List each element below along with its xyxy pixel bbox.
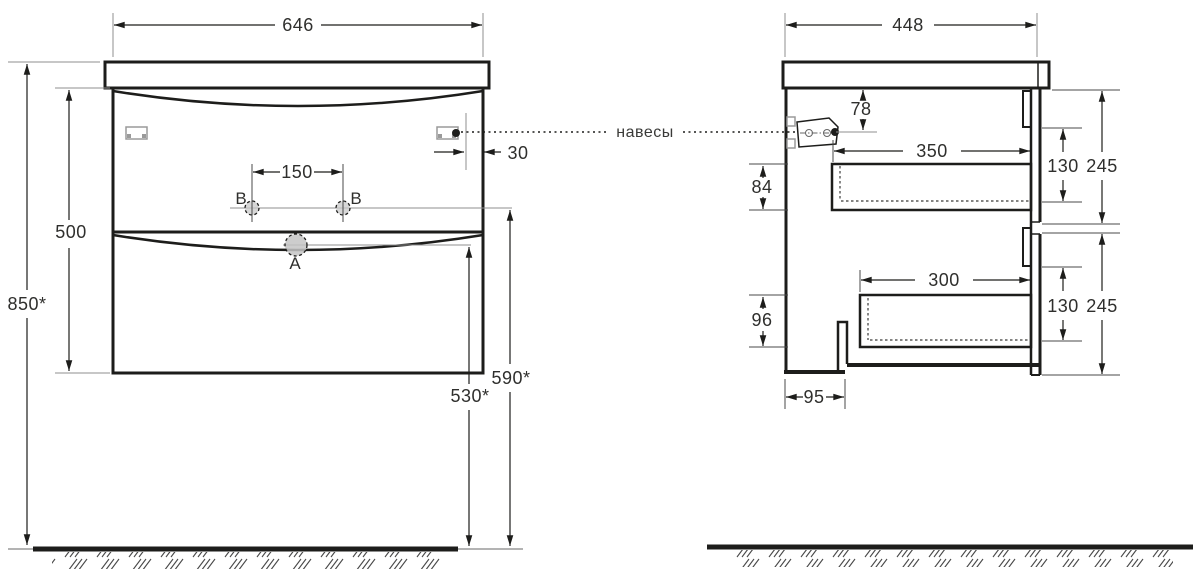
dim-hanger-inset: 30	[434, 143, 529, 163]
floor-hatching-right	[728, 550, 1173, 567]
dim-drawer1-box-height: 84	[749, 164, 788, 210]
side-depth-value: 448	[892, 15, 924, 35]
label-hole-b-left: B	[235, 189, 246, 208]
front-width-value: 646	[282, 15, 314, 35]
siphon-recess-wall	[838, 322, 847, 372]
dim-drawer2-box-height: 96	[749, 295, 788, 347]
front-view	[105, 62, 512, 373]
technical-drawing: 646 500 850* 150 30 B B A 590* 530*	[0, 0, 1200, 575]
back-recess-value: 95	[803, 387, 824, 407]
dim-back-recess: 95	[785, 379, 845, 409]
cabinet-height-value: 500	[55, 222, 87, 242]
height-to-holes-value: 590*	[491, 368, 530, 388]
floor-right	[707, 547, 1193, 567]
drawer1-front-height-value: 245	[1086, 156, 1118, 176]
dim-overall-height: 850*	[7, 62, 100, 545]
hanger-bracket-right-icon	[437, 127, 460, 139]
dim-drawer2-depth: 300	[860, 270, 1030, 292]
drawer2-box-height-value: 96	[751, 310, 772, 330]
floor-left	[8, 549, 523, 569]
hole-a	[285, 234, 307, 256]
height-to-drain-value: 530*	[450, 386, 489, 406]
dim-holes-spacing: 150	[252, 162, 343, 222]
drawer2-depth-value: 300	[928, 270, 960, 290]
dim-drawer1-depth: 350	[833, 140, 1030, 162]
front-countertop	[105, 62, 489, 88]
holes-spacing-value: 150	[281, 162, 313, 182]
dim-side-depth: 448	[785, 13, 1037, 57]
drawer-box-2	[860, 295, 1031, 347]
drawer1-box-height-value: 84	[751, 177, 772, 197]
drawer2-inner-height-value: 130	[1047, 296, 1079, 316]
dim-drawer2-inner-height: 130	[1042, 267, 1082, 341]
side-countertop	[783, 62, 1049, 88]
drawer1-inner-height-value: 130	[1047, 156, 1079, 176]
dim-height-to-holes: 590*	[491, 210, 530, 546]
side-view	[783, 62, 1049, 375]
connector-hangers: навесы	[461, 124, 830, 141]
hanger-bracket-left-icon	[126, 127, 147, 139]
drawer2-front-height-value: 245	[1086, 296, 1118, 316]
dim-drawer1-inner-height: 130	[1042, 128, 1082, 202]
label-hole-a: A	[289, 254, 301, 273]
dim-cabinet-height: 500	[55, 88, 110, 373]
connector-label: навесы	[616, 124, 673, 141]
overall-height-value: 850*	[7, 294, 46, 314]
label-hole-b-right: B	[350, 189, 361, 208]
dim-front-width: 646	[113, 13, 483, 57]
drawer-box-1	[832, 164, 1031, 210]
floor-hatching-left	[52, 552, 444, 569]
dim-hanger-drop: 78	[850, 90, 871, 130]
hanger-inset-value: 30	[507, 143, 528, 163]
drawer1-handle-groove	[113, 91, 483, 106]
drawer1-depth-value: 350	[916, 141, 948, 161]
hanger-drop-value: 78	[850, 99, 871, 119]
